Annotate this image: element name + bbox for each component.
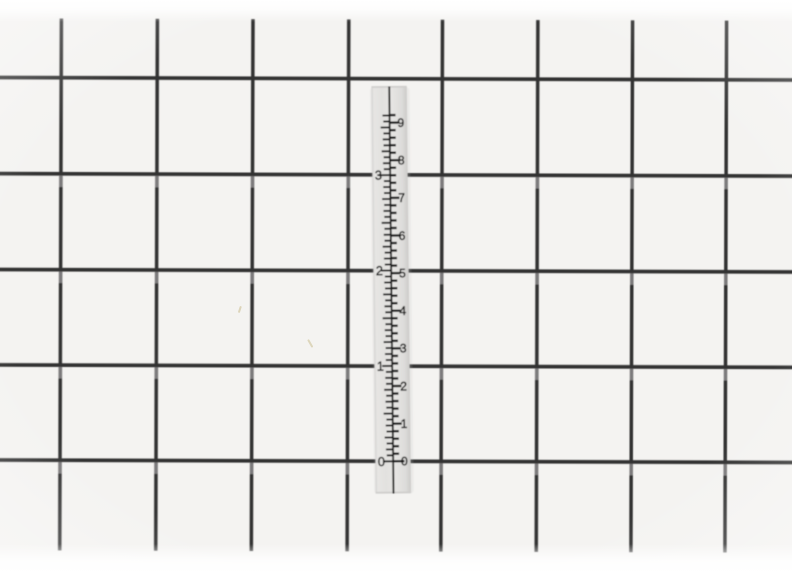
- svg-text:1: 1: [401, 417, 408, 431]
- svg-text:4: 4: [399, 304, 406, 318]
- svg-text:9: 9: [397, 116, 404, 130]
- svg-text:1: 1: [377, 358, 384, 373]
- svg-text:0: 0: [378, 454, 385, 469]
- svg-text:3: 3: [400, 342, 407, 356]
- svg-text:0: 0: [401, 454, 408, 468]
- svg-text:2: 2: [400, 379, 407, 393]
- svg-text:6: 6: [399, 229, 406, 243]
- svg-text:5: 5: [399, 266, 406, 280]
- svg-text:8: 8: [398, 153, 405, 167]
- svg-text:7: 7: [398, 191, 405, 205]
- svg-text:3: 3: [375, 168, 382, 183]
- svg-text:2: 2: [376, 263, 383, 278]
